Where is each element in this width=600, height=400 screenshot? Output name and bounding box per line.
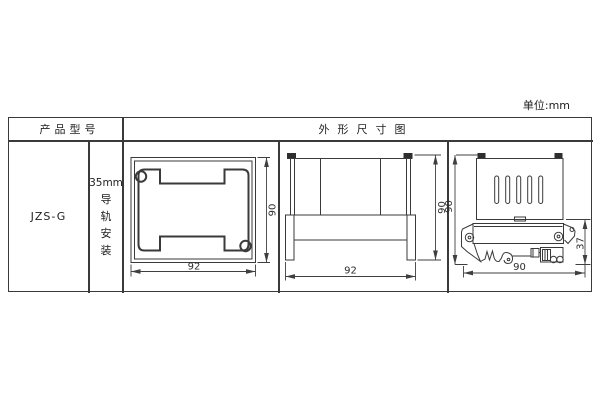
rail-view-drawing: 90 37 90 xyxy=(444,153,591,278)
mount-tab xyxy=(287,153,296,159)
side-view-drawing: 90 92 xyxy=(286,153,449,281)
datasheet-page: 单位:mm 产品型号 外形尺寸图 JZS-G 35mm 导 轨 安 装 xyxy=(0,0,600,400)
front-height-dim: 90 xyxy=(268,204,279,217)
mount-tab xyxy=(404,153,413,159)
din-spring-clip xyxy=(481,251,513,264)
front-width-dim: 92 xyxy=(188,262,201,273)
clip-screw xyxy=(465,233,473,241)
vent-slots xyxy=(495,176,543,204)
rail-width-dim: 90 xyxy=(513,262,526,273)
mount-tab xyxy=(478,153,486,159)
front-screw-top-left xyxy=(136,171,146,181)
din-clip-right-wing xyxy=(564,224,576,244)
clip-screw xyxy=(554,232,562,240)
mount-tab xyxy=(555,153,563,159)
din-clip-left-wing xyxy=(462,224,481,262)
front-view-drawing: 90 92 xyxy=(131,158,279,277)
rail-clip-height-dim: 37 xyxy=(576,237,587,250)
dimension-drawings: 90 92 90 92 xyxy=(0,0,600,400)
side-width-dim: 92 xyxy=(344,266,357,277)
rail-height-dim: 90 xyxy=(444,200,455,213)
